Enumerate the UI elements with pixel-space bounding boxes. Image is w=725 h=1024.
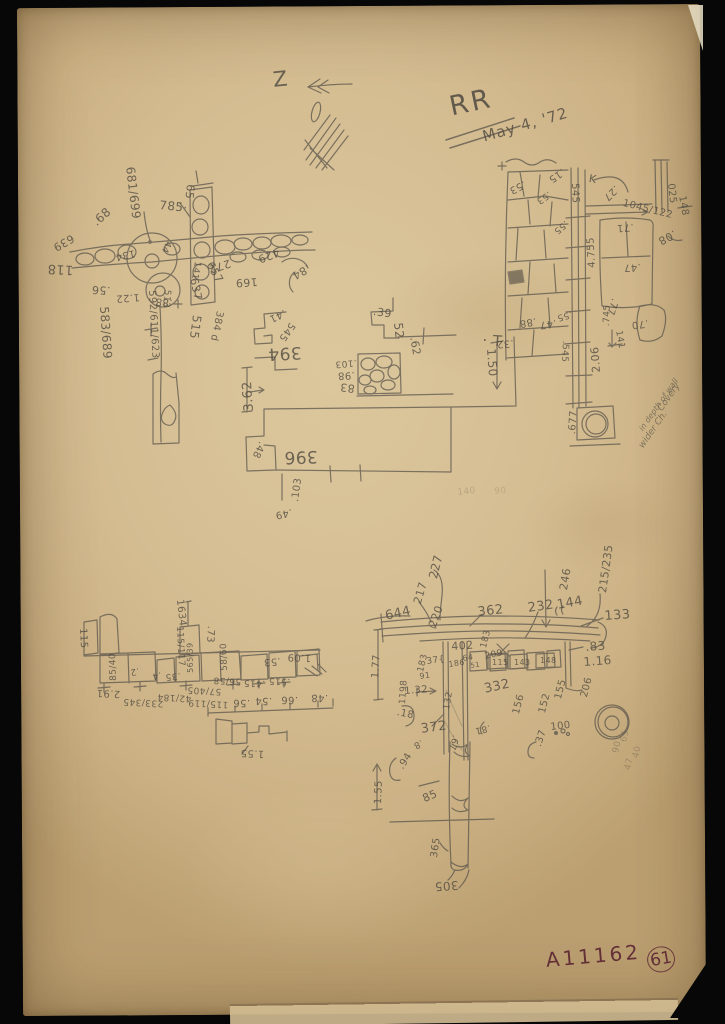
sketch-overlay: Z RR May 4, '72 A11162 61 681/699785·65.… <box>0 0 725 1024</box>
measurement-label: .415 <box>243 677 265 687</box>
measurement-label: 362 <box>477 603 504 619</box>
measurement-label: 515 <box>188 314 203 340</box>
measurement-label: 133 <box>604 608 631 623</box>
measurement-label: 65 <box>184 184 196 200</box>
measurement-label: 246 <box>558 567 573 591</box>
measurement-label: .73 <box>204 625 215 643</box>
measurement-label: .53 <box>534 189 552 205</box>
measurement-label: 220 <box>427 604 445 629</box>
measurement-label: .66 <box>281 694 298 704</box>
measurement-label: 155 <box>554 678 569 700</box>
measurement-label: 37{ <box>426 655 445 666</box>
measurement-label: 90 <box>494 487 507 497</box>
measurement-label: .47 <box>539 317 557 329</box>
measurement-label: 1198 <box>399 680 410 705</box>
measurement-label: 1.16 <box>583 654 612 668</box>
measurement-label: 1.55 <box>374 780 385 804</box>
measurement-label: 115/117 <box>174 626 185 667</box>
measurement-label: 183 <box>480 629 493 649</box>
measurement-label: .67 <box>446 734 459 751</box>
measurement-label: 232 <box>527 598 555 614</box>
measurement-label: 2.91 <box>96 687 120 698</box>
measurement-label: 637 <box>188 277 203 301</box>
measurement-label: 217 <box>412 581 429 605</box>
measurement-label: .98 <box>337 369 355 380</box>
measurement-label: 140 <box>457 487 476 498</box>
measurement-label: .08 <box>656 228 678 246</box>
page-number-circled: 61 <box>645 944 677 974</box>
measurement-label: .49 <box>274 506 293 519</box>
measurement-label: 227 <box>427 554 444 580</box>
measurement-label: .68 <box>90 205 113 227</box>
measurement-label: 1.09 <box>287 651 311 662</box>
measurement-label: 394 <box>268 343 302 362</box>
measurement-label: 565/39 <box>186 642 195 673</box>
measurement-label: .56 <box>91 284 110 296</box>
measurement-label: 785· <box>159 199 188 214</box>
measurement-label: 144 <box>556 594 584 611</box>
measurement-label: 132 <box>443 691 455 711</box>
measurement-label: 100 <box>550 721 571 733</box>
measurement-label: 402 <box>451 639 474 652</box>
measurement-label: 545 <box>569 183 580 204</box>
measurement-label: 215/235 <box>597 544 615 594</box>
measurement-label: 141 <box>613 330 625 350</box>
measurement-label: 305 <box>434 879 459 893</box>
scanned-page: Z RR May 4, '72 A11162 61 681/699785·65.… <box>0 0 725 1024</box>
measurement-label: .18 <box>396 708 415 721</box>
measurement-label: 1.50 <box>485 348 499 377</box>
measurement-label: 90 <box>612 740 624 754</box>
measurement-label: 1045/122 <box>622 199 674 221</box>
measurement-label: 91 <box>419 671 431 680</box>
measurement-label: .77 <box>604 297 619 316</box>
measurement-label: 40 <box>632 745 644 759</box>
measurement-label: 152 <box>538 692 553 714</box>
measurement-label: 1.77 <box>371 654 383 679</box>
measurement-label: 143 <box>514 659 530 667</box>
measurement-label: 365 <box>430 837 443 858</box>
measurement-label: .84 <box>290 262 312 281</box>
measurement-label: 57/405 <box>187 684 222 695</box>
measurement-label: .27 <box>601 183 620 202</box>
catalog-number: A11162 <box>545 942 642 970</box>
measurement-label: 58/60 <box>220 643 230 671</box>
measurement-label: .53 <box>507 178 527 195</box>
measurement-label: 156 <box>512 693 527 715</box>
measurement-label: .70 <box>631 317 649 329</box>
measurement-label: 372 <box>420 719 448 735</box>
measurement-label: 148 <box>676 195 689 217</box>
measurement-label: .35 <box>165 670 181 681</box>
measurement-label: 51 <box>470 662 481 670</box>
measurement-label: 644 <box>384 605 412 623</box>
measurement-label: .81 <box>474 722 491 734</box>
orientation-mark: Z <box>272 68 289 90</box>
measurement-label: .4 <box>151 669 162 680</box>
measurement-label: .103 <box>291 477 304 502</box>
measurement-label: .83 <box>585 640 606 653</box>
measurement-label: 429 <box>256 247 281 265</box>
measurement-label: .56 <box>233 697 250 707</box>
measurement-label: 115/119 <box>188 697 229 708</box>
measurement-label: .545 <box>559 341 569 363</box>
measurement-label: 332 <box>483 678 511 696</box>
measurement-label: 1.22 <box>115 291 140 303</box>
measurement-label: .103 <box>335 357 357 368</box>
measurement-label: K <box>588 173 597 185</box>
measurement-label: .32 <box>496 337 514 348</box>
measurement-label: 44 <box>159 239 172 254</box>
measurement-label: 47 <box>624 757 636 771</box>
locus-label: RR <box>447 85 495 120</box>
measurement-label: .62 <box>408 336 422 356</box>
measurement-label: 3.62 <box>241 381 256 412</box>
measurement-label: .39 <box>372 306 392 319</box>
measurement-label: .54 <box>255 695 272 705</box>
measurement-label: .37 <box>534 729 549 748</box>
measurement-label: .8 <box>411 737 424 749</box>
measurement-label: 1.55 <box>240 747 264 758</box>
measurement-label: 83 <box>339 381 355 394</box>
measurement-label: 148 <box>540 657 556 665</box>
measurement-label: 52 <box>392 322 406 339</box>
measurement-label: .71 <box>616 221 634 232</box>
measurement-label: .47 <box>623 261 641 272</box>
measurement-label: 4.755 <box>586 237 598 268</box>
measurement-label: 85/40 <box>109 653 119 681</box>
measurement-label: .88 <box>155 295 173 307</box>
measurement-label: .15 <box>546 166 566 184</box>
measurement-label: 2.06 <box>589 346 602 373</box>
measurement-label: 56/58 <box>213 675 241 685</box>
measurement-label: .48 <box>250 440 266 460</box>
measurement-label: .55 <box>551 218 569 235</box>
measurement-label: 169 <box>235 276 258 289</box>
measurement-label: 134 <box>114 247 136 261</box>
measurement-label: 639 <box>51 232 76 253</box>
measurement-label: 384 d <box>208 310 224 342</box>
measurement-label: 85 <box>421 788 439 804</box>
measurement-label: 396 <box>284 447 318 465</box>
measurement-label: .677 <box>568 410 580 435</box>
measurement-label: 115 <box>77 628 88 649</box>
measurement-label: 025 <box>665 183 677 204</box>
measurement-label: .55 <box>556 308 573 321</box>
measurement-label: 1634 <box>174 599 187 627</box>
measurement-label: .515 <box>268 675 290 685</box>
measurement-label: .2 <box>129 665 140 676</box>
measurement-label: .48 <box>311 692 328 702</box>
measurement-label: .41 <box>267 307 287 323</box>
measurement-label: .94 <box>397 751 415 771</box>
measurement-label: 545 <box>276 320 296 342</box>
measurement-label: .88 <box>518 315 537 328</box>
measurement-label: 118 <box>47 262 74 276</box>
annotation-layer: Z RR May 4, '72 A11162 61 681/699785·65.… <box>0 0 725 1024</box>
measurement-label: 65 <box>620 729 632 743</box>
measurement-label: 583/689 <box>98 306 114 359</box>
measurement-label: 115 <box>492 659 508 667</box>
measurement-label: .53 <box>263 655 281 666</box>
measurement-label: 206 <box>580 676 595 698</box>
measurement-label: 681/699 <box>124 166 142 220</box>
